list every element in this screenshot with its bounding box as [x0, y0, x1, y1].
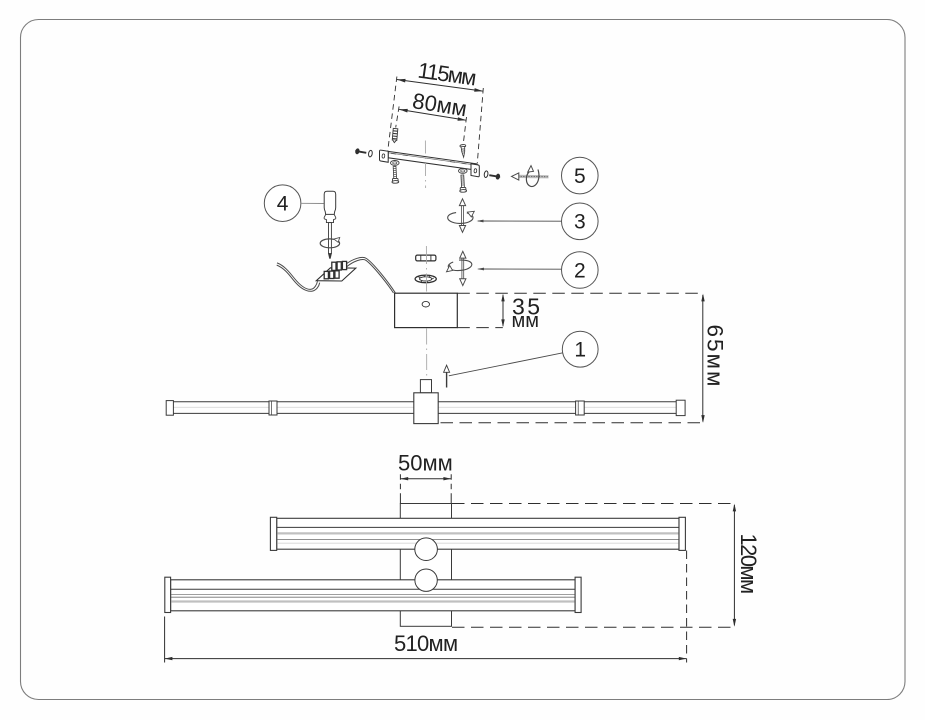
svg-text:мм: мм: [512, 310, 540, 332]
svg-text:3: 3: [574, 211, 586, 234]
svg-text:510мм: 510мм: [394, 631, 457, 656]
svg-text:65мм: 65мм: [703, 325, 728, 389]
svg-text:2: 2: [574, 259, 586, 282]
svg-text:4: 4: [277, 193, 289, 216]
svg-text:50мм: 50мм: [398, 451, 453, 476]
svg-text:1: 1: [574, 339, 586, 362]
svg-text:115мм: 115мм: [416, 58, 477, 91]
svg-text:5: 5: [574, 165, 586, 188]
svg-text:120мм: 120мм: [736, 534, 761, 593]
